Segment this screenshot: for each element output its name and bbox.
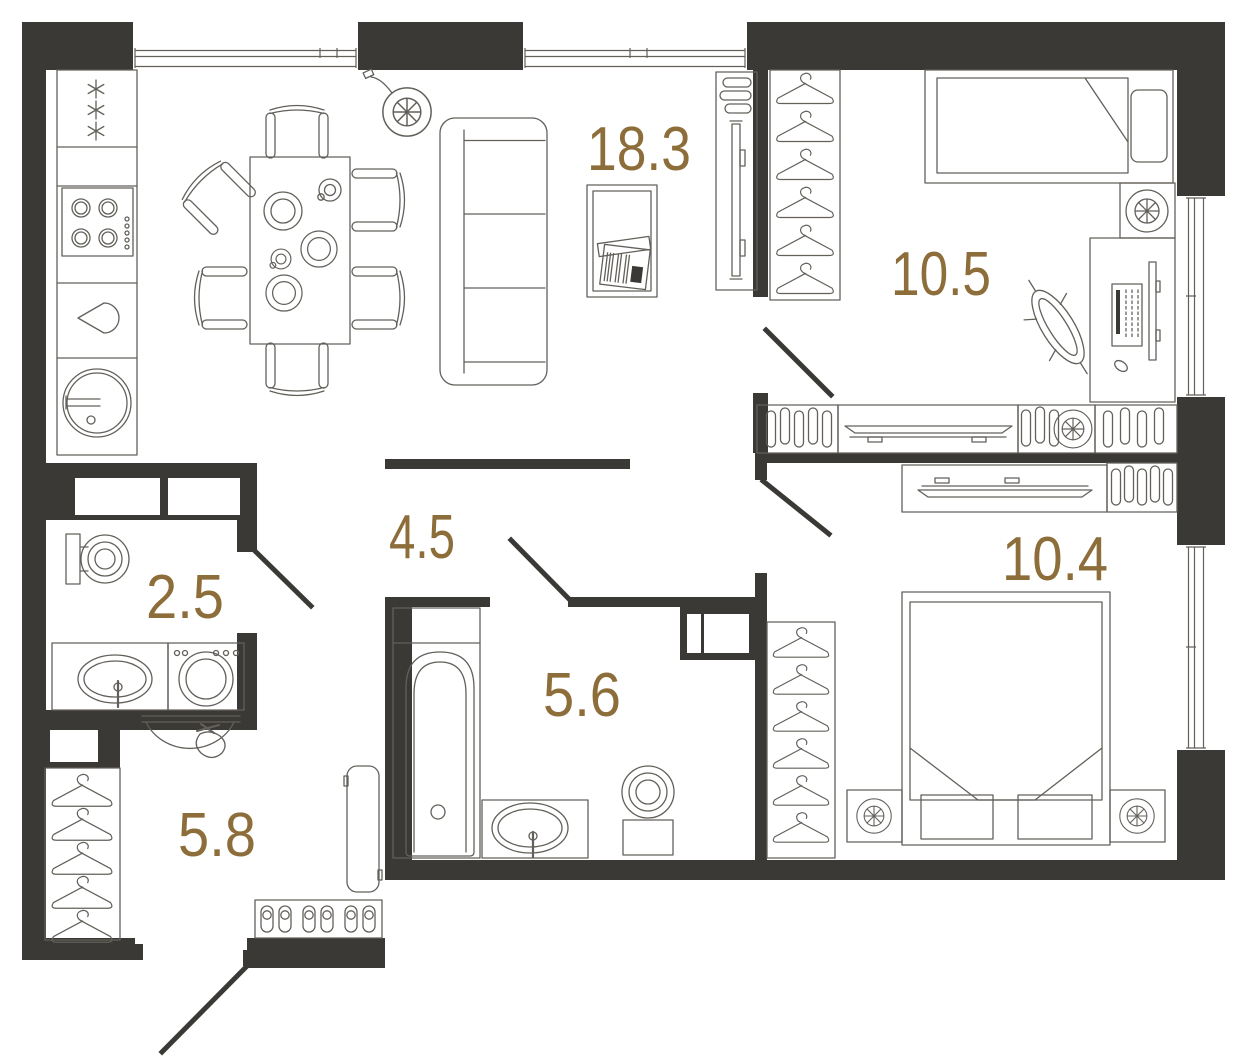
door-bedroom-lower (763, 481, 829, 534)
door-bedroom-upper (766, 330, 831, 395)
chair (352, 169, 405, 231)
room-label-wc: 2.5 (146, 563, 224, 632)
room-label-living-kitchen: 18.3 (587, 115, 691, 184)
monitor-icon (1149, 262, 1156, 360)
room-label-bedroom-upper: 10.5 (891, 240, 991, 309)
radiator (1107, 463, 1177, 512)
pillow (921, 795, 993, 839)
kitchen-counter (57, 70, 137, 455)
nightstand (847, 790, 902, 842)
door-wc (256, 552, 311, 606)
mouse-icon (1113, 358, 1130, 373)
wc-sink-icon (52, 643, 168, 710)
single-bed (925, 70, 1173, 183)
shoe-rack (255, 900, 382, 938)
toilet-icon (622, 766, 674, 855)
kitchen-sink-icon (63, 369, 131, 437)
room-label-bedroom-lower: 10.4 (1002, 525, 1108, 594)
wardrobe (45, 768, 120, 942)
coffee-table (587, 185, 657, 297)
stove-icon (62, 188, 133, 256)
dining-set (176, 106, 404, 396)
chair (176, 155, 257, 236)
tv-icon (732, 124, 740, 276)
bench (344, 766, 382, 892)
vent-box (1120, 183, 1175, 238)
wardrobe (767, 622, 835, 858)
ceiling-lamp-icon (363, 69, 431, 136)
room-label-entry-hall: 5.8 (178, 801, 256, 870)
sofa (440, 118, 547, 385)
living-room (363, 69, 757, 385)
bathroom (393, 608, 674, 858)
room-label-hallway: 4.5 (389, 503, 455, 572)
nightstand (1110, 790, 1165, 842)
radiator-shelf-strip (757, 405, 1177, 453)
kettle-icon (78, 303, 119, 333)
window-kitchen (133, 22, 358, 70)
tv-unit (716, 72, 757, 290)
washing-machine-icon (168, 643, 244, 710)
floor-plan-canvas: 18.3 10.5 10.4 4.5 2.5 5.6 5.8 (0, 0, 1250, 1063)
chair (266, 106, 328, 159)
tv-stand (902, 465, 1107, 512)
window-bedroom-lower (1177, 545, 1225, 750)
chair (352, 267, 405, 329)
desk (1090, 238, 1175, 402)
room-label-bathroom: 5.6 (543, 661, 621, 730)
dining-table (250, 157, 350, 344)
kitchen (57, 70, 137, 455)
window-living (523, 22, 747, 70)
chair (266, 343, 328, 396)
pillow (1018, 795, 1092, 839)
office-chair (1008, 267, 1109, 387)
window-bedroom-upper (1177, 196, 1225, 397)
fridge-icon (88, 80, 104, 140)
toilet-icon (66, 534, 129, 584)
tv-icon (918, 486, 1092, 497)
bedroom-lower (767, 463, 1177, 858)
door-bathroom (511, 540, 568, 598)
chair (195, 267, 248, 329)
wardrobe (770, 70, 840, 300)
water-heater-icon (142, 716, 240, 758)
door-entrance (162, 963, 250, 1052)
bathroom-sink-icon (482, 800, 588, 858)
double-bed (902, 592, 1110, 845)
tv-icon (845, 426, 1012, 437)
floor-plan: 18.3 10.5 10.4 4.5 2.5 5.6 5.8 (0, 0, 1250, 1063)
